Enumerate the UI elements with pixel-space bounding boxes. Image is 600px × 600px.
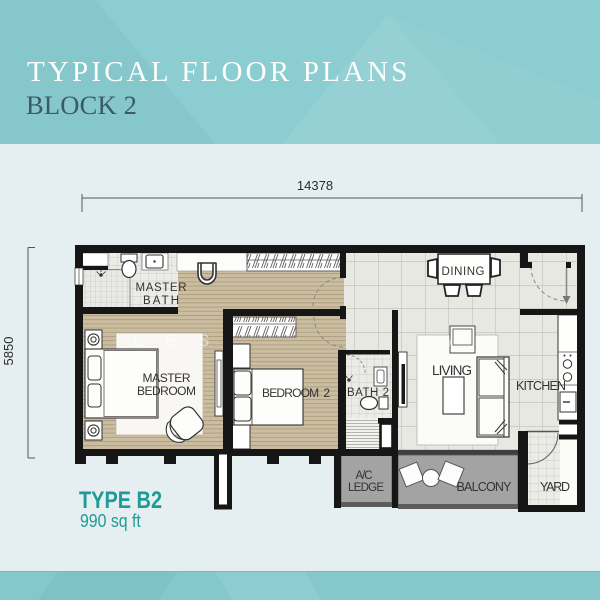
svg-text:L: L — [133, 331, 142, 350]
svg-text:KITCHEN: KITCHEN — [516, 379, 566, 393]
svg-text:BATH: BATH — [143, 295, 179, 307]
svg-text:DINING: DINING — [442, 266, 485, 278]
svg-text:YARD: YARD — [540, 480, 570, 494]
svg-text:14378: 14378 — [297, 178, 333, 193]
svg-text:BEDROOM: BEDROOM — [137, 384, 196, 398]
svg-text:BATH 2: BATH 2 — [347, 387, 389, 399]
svg-text:BALCONY: BALCONY — [457, 480, 513, 494]
svg-text:BEDROOM 2: BEDROOM 2 — [262, 386, 330, 400]
svg-text:LEDGE: LEDGE — [348, 482, 384, 494]
svg-text:LIVING: LIVING — [432, 363, 472, 378]
svg-text:MASTER: MASTER — [143, 371, 191, 385]
svg-text:MASTER: MASTER — [136, 282, 187, 294]
svg-text:S: S — [198, 331, 209, 350]
svg-text:A/C: A/C — [356, 470, 373, 482]
svg-text:E: E — [165, 331, 176, 350]
svg-text:5850: 5850 — [1, 337, 16, 366]
svg-text:W: W — [437, 332, 453, 351]
